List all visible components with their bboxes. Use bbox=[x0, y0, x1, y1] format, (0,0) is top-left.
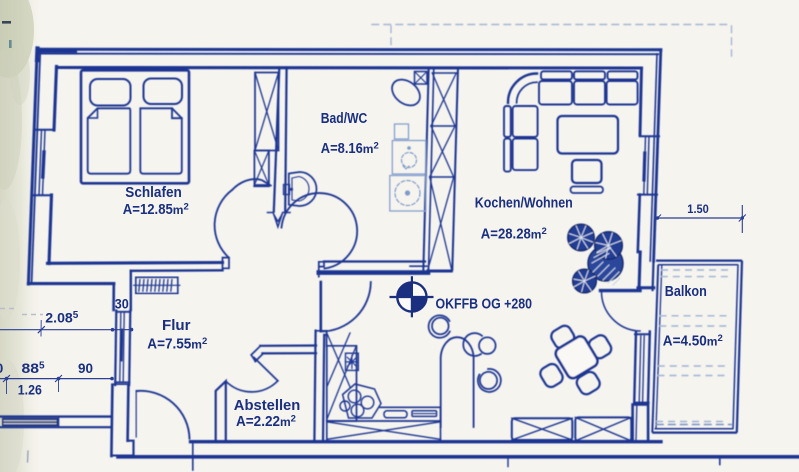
svg-text:A=28.28m2: A=28.28m2 bbox=[481, 226, 547, 243]
svg-text:OKFFB OG +280: OKFFB OG +280 bbox=[436, 296, 533, 312]
svg-text:1.50: 1.50 bbox=[687, 204, 709, 216]
svg-text:90: 90 bbox=[78, 360, 93, 376]
svg-text:30: 30 bbox=[115, 295, 129, 311]
svg-text:Flur: Flur bbox=[162, 318, 191, 334]
svg-text:A=2.22m2: A=2.22m2 bbox=[236, 413, 296, 430]
svg-text:Balkon: Balkon bbox=[665, 284, 707, 300]
svg-text:Bad/WC: Bad/WC bbox=[321, 111, 368, 127]
svg-text:A=4.50m2: A=4.50m2 bbox=[663, 333, 723, 350]
svg-text:A=8.16m2: A=8.16m2 bbox=[321, 141, 379, 158]
svg-text:A=7.55m2: A=7.55m2 bbox=[147, 336, 207, 353]
svg-text:Kochen/Wohnen: Kochen/Wohnen bbox=[475, 196, 573, 212]
svg-text:Abstellen: Abstellen bbox=[234, 398, 300, 414]
svg-text:1.26: 1.26 bbox=[18, 381, 42, 397]
svg-text:0: 0 bbox=[0, 360, 4, 376]
svg-text:A=12.85m2: A=12.85m2 bbox=[123, 201, 189, 218]
svg-text:Schlafen: Schlafen bbox=[125, 185, 182, 201]
